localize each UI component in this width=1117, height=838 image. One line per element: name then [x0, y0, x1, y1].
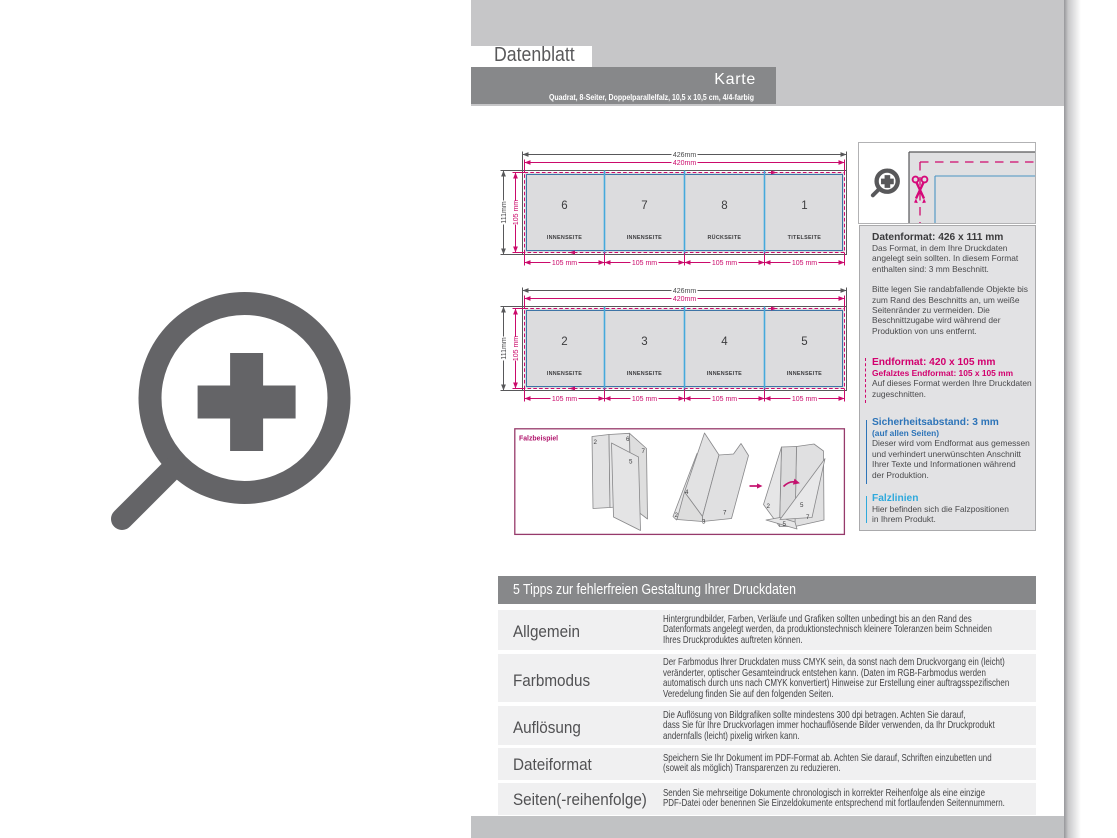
svg-text:2: 2	[594, 439, 598, 446]
svg-text:105 mm: 105 mm	[632, 260, 657, 267]
svg-text:RÜCKSEITE: RÜCKSEITE	[707, 234, 741, 241]
svg-text:105 mm: 105 mm	[552, 396, 577, 403]
svg-text:105 mm: 105 mm	[632, 396, 657, 403]
svg-text:4: 4	[721, 336, 728, 348]
svg-text:8: 8	[721, 200, 727, 212]
svg-text:6: 6	[561, 200, 567, 212]
svg-text:INNENSEITE: INNENSEITE	[627, 371, 662, 377]
svg-text:111mm: 111mm	[501, 337, 508, 359]
svg-text:105 mm: 105 mm	[712, 396, 737, 403]
svg-text:2: 2	[561, 336, 567, 348]
svg-text:426mm: 426mm	[673, 288, 697, 295]
svg-text:7: 7	[641, 200, 647, 212]
svg-text:1: 1	[801, 200, 807, 212]
svg-text:105 mm: 105 mm	[712, 260, 737, 267]
svg-text:INNENSEITE: INNENSEITE	[547, 235, 582, 241]
svg-text:INNENSEITE: INNENSEITE	[627, 235, 662, 241]
svg-text:INNENSEITE: INNENSEITE	[787, 371, 822, 377]
svg-text:420mm: 420mm	[673, 296, 697, 303]
svg-text:7: 7	[642, 448, 646, 455]
svg-text:3: 3	[641, 336, 647, 348]
svg-text:7: 7	[806, 514, 810, 521]
svg-text:3: 3	[702, 519, 706, 526]
svg-text:105 mm: 105 mm	[792, 396, 817, 403]
svg-text:2: 2	[675, 512, 679, 519]
svg-text:105 mm: 105 mm	[513, 200, 520, 225]
svg-text:5: 5	[800, 502, 804, 509]
svg-text:105 mm: 105 mm	[552, 260, 577, 267]
svg-text:111mm: 111mm	[501, 201, 508, 223]
svg-text:7: 7	[723, 510, 727, 517]
svg-text:TITELSEITE: TITELSEITE	[788, 235, 822, 241]
svg-text:5: 5	[801, 336, 807, 348]
svg-text:5: 5	[783, 521, 787, 528]
svg-text:105 mm: 105 mm	[792, 260, 817, 267]
svg-text:INNENSEITE: INNENSEITE	[547, 371, 582, 377]
svg-text:Falzbeispiel: Falzbeispiel	[519, 436, 558, 443]
svg-text:INNENSEITE: INNENSEITE	[707, 371, 742, 377]
svg-text:2: 2	[767, 503, 771, 510]
svg-text:105 mm: 105 mm	[513, 336, 520, 361]
svg-text:426mm: 426mm	[673, 152, 697, 159]
svg-text:5: 5	[629, 459, 633, 466]
svg-text:4: 4	[685, 489, 689, 496]
svg-text:6: 6	[626, 436, 630, 443]
svg-text:420mm: 420mm	[673, 160, 697, 167]
